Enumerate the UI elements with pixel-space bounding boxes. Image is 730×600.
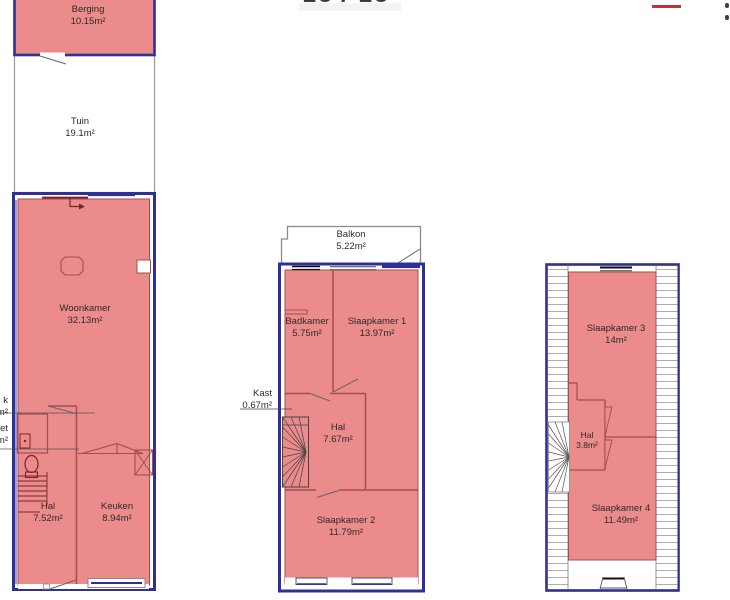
cropped-text-fragment [725,15,729,20]
window-icon [296,578,327,585]
room-label-hal-second: Hal3.8m² [576,430,598,450]
room-label-woonkamer: Woonkamer32.13m² [59,303,110,326]
cistern-dot [24,440,26,442]
room-label-kast: Kast0.67m² [222,388,272,411]
room-label-berging: Berging10.15m² [71,4,106,27]
red-underline-mark [652,5,681,8]
room-label-tuin: Tuin19.1m² [65,116,95,139]
cropped-page-title: 234-23 [303,0,395,8]
window-icon [352,578,392,585]
cutoff-room-label: etm² [0,423,8,446]
room-label-slaapkamer-3: Slaapkamer 314m² [587,323,646,346]
room-label-hal-first: Hal7.67m² [323,422,353,445]
room-label-slaapkamer-2: Slaapkamer 211.79m² [317,515,376,538]
room-label-badkamer: Badkamer5.75m² [285,316,328,339]
window-icon [88,579,145,588]
berging-door-opening [40,53,65,58]
room-label-slaapkamer-4: Slaapkamer 411.49m² [592,503,651,526]
top-wall-segment [382,265,420,269]
cropped-text-fragment [725,3,729,8]
room-label-hal-ground: Hal7.52m² [33,501,63,524]
spiral-stairs-icon [549,422,570,492]
wall-notch [137,260,151,273]
room-label-keuken: Keuken8.94m² [101,501,133,524]
spiral-stairs-icon [283,417,309,487]
second-floor-plan [547,265,679,591]
front-door-threshold [42,197,88,199]
roof-slope-hatch [656,266,678,589]
floorplan-sheet: 234-23 Berging10.15m² Tuin19.1m² Woonkam… [0,0,730,600]
ground-floor-rooms-fill [18,199,150,585]
front-window [88,193,135,197]
room-label-balkon: Balkon5.22m² [336,229,366,252]
room-label-slaapkamer-1: Slaapkamer 113.97m² [348,316,407,339]
cutoff-room-label: km² [0,395,8,418]
door-opening [44,584,50,589]
